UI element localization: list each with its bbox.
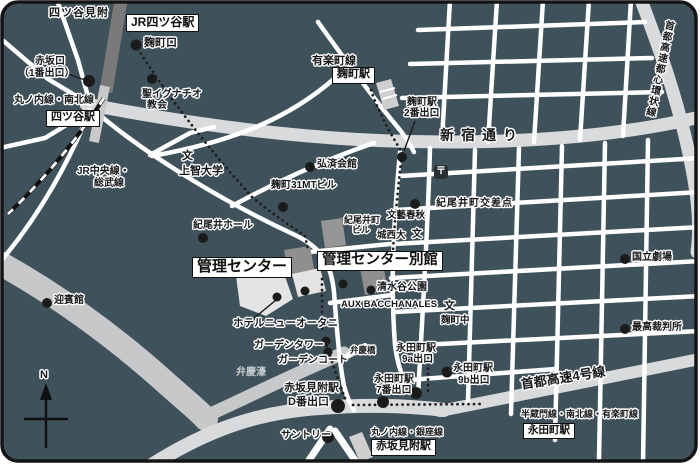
line-marunouchi-namboku: 丸ノ内線・南北線 (14, 96, 94, 107)
road-label-shinjuku-dori: 新宿通り (440, 128, 524, 143)
place-supreme-court: 最高裁判所 (632, 323, 682, 334)
station-box-kojimachi: 麹町駅 (332, 67, 375, 84)
exit-akasaka-guchi: 赤坂口 (35, 57, 65, 68)
place-kojimachi-31mt: 麹町31MTビル (271, 181, 337, 192)
exit-akasaka-d-station: 赤坂見附駅 (284, 383, 339, 395)
place-benkei-bashi: 弁慶橋 (350, 346, 376, 355)
exit-akasaka-guchi-sub: （1番出口） (19, 69, 75, 80)
route-map: 四ツ谷見附 JR四ツ谷駅 麹町口 赤坂口 （1番出口） 丸ノ内線・南北線 四ツ谷… (0, 0, 700, 469)
dot-geihinkan (42, 298, 52, 308)
destination-box-kanri-center-annex: 管理センター別館 (317, 251, 443, 271)
place-geihinkan: 迎賓館 (54, 296, 84, 307)
place-kioi-hall: 紀尾井ホール (193, 221, 253, 232)
exit-nagatacho-7-1: 永田町駅 (374, 375, 414, 386)
line-marunouchi-ginza: 丸ノ内線・銀座線 (371, 428, 443, 437)
dot-kojimachi-exit2 (397, 152, 407, 162)
place-aux-bacchanales: AUX BACCHANALES (341, 300, 437, 310)
place-kioicho-bldg-2: ビル (352, 226, 370, 235)
exit-nagatacho-9b-1: 永田町駅 (453, 364, 493, 375)
line-jr-chuo-2: 総武線 (94, 179, 124, 190)
compass-north-label: N (40, 370, 48, 382)
exit-nagatacho-9b-2: 9b出口 (458, 376, 490, 387)
school-icon-josai: 文 (412, 230, 422, 241)
dot-kioi-hall (198, 233, 208, 243)
dot-supreme-court (620, 324, 630, 334)
place-st-ignatius-1: 聖イグナチオ (142, 90, 202, 101)
destination-box-kanri-center: 管理センター (192, 257, 292, 278)
dot-kosai-kaikan (305, 162, 315, 172)
dot-akasaka-guchi (83, 75, 95, 87)
dot-bungei-shunju (410, 199, 420, 209)
place-yotsuya-mitsuke: 四ツ谷見附 (49, 8, 109, 20)
place-sophia-univ: 上智大学 (179, 166, 223, 178)
place-kojimachi-jhs: 麹町中 (441, 316, 470, 326)
line-hanzomon-namboku-yurakucho: 半蔵門線・南北線・有楽町線 (521, 410, 638, 419)
school-icon-sophia: 文 (182, 151, 193, 163)
place-st-ignatius-2: 教会 (147, 101, 167, 112)
school-icon-kojimachi-jhs: 文 (444, 301, 455, 313)
station-box-yotsuya: 四ツ谷駅 (46, 110, 100, 127)
place-kosai-kaikan: 弘済会館 (317, 160, 357, 171)
kioicho-building (321, 218, 346, 248)
dot-nagatacho-9b (442, 367, 453, 378)
line-jr-chuo-1: JR中央線・ (77, 167, 130, 178)
place-suntory: サントリー (281, 431, 331, 442)
station-box-nagatacho: 永田町駅 (523, 423, 575, 439)
place-benkei-bori: 弁慶濠 (236, 368, 266, 379)
line-yurakucho: 有楽町線 (312, 56, 356, 68)
post-office-icon: 〒 (434, 165, 448, 179)
dot-kojimachi-guchi (131, 40, 142, 51)
exit-nagatacho-7-2: 7番出口 (376, 386, 412, 397)
exit-kojimachi-2-2: 2番出口 (404, 109, 440, 120)
place-hotel-new-otani: ホテルニューオータニ (233, 318, 338, 329)
exit-nagatacho-9a-1: 永田町駅 (396, 344, 436, 355)
station-box-jr-yotsuya: JR四ツ谷駅 (126, 14, 199, 32)
place-josai-univ: 城西大 (377, 231, 406, 241)
dot-nagatacho-7 (377, 396, 389, 408)
place-bungei-shunju: 文藝春秋 (387, 211, 425, 221)
dot-hotel-tower (339, 280, 348, 289)
dot-hotel-annex (301, 287, 310, 296)
exit-akasaka-d: D番出口 (288, 397, 329, 409)
place-national-theatre: 国立劇場 (632, 253, 672, 264)
dot-exit-d (331, 399, 345, 413)
dot-kojimachi-31mt (278, 202, 288, 212)
dot-st-ignatius (147, 74, 157, 84)
exit-kojimachi-2-1: 麹町駅 (407, 98, 437, 109)
place-shimizudani-park: 清水谷公園 (377, 283, 427, 294)
place-garden-tower: ガーデンタワー (254, 341, 324, 352)
dot-shimizudani-park (367, 286, 376, 295)
station-box-akasaka-mitsuke: 赤坂見附駅 (371, 439, 436, 456)
exit-kojimachi-guchi: 麹町口 (144, 38, 177, 50)
dot-national-theatre (620, 254, 630, 264)
exit-nagatacho-9a-2: 9a出口 (402, 355, 433, 366)
place-garden-court: ガーデンコート (278, 356, 348, 367)
dot-hotel-new-otani (273, 293, 282, 302)
place-kioicho-kosaten: 紀尾井町交差点 (436, 199, 513, 210)
